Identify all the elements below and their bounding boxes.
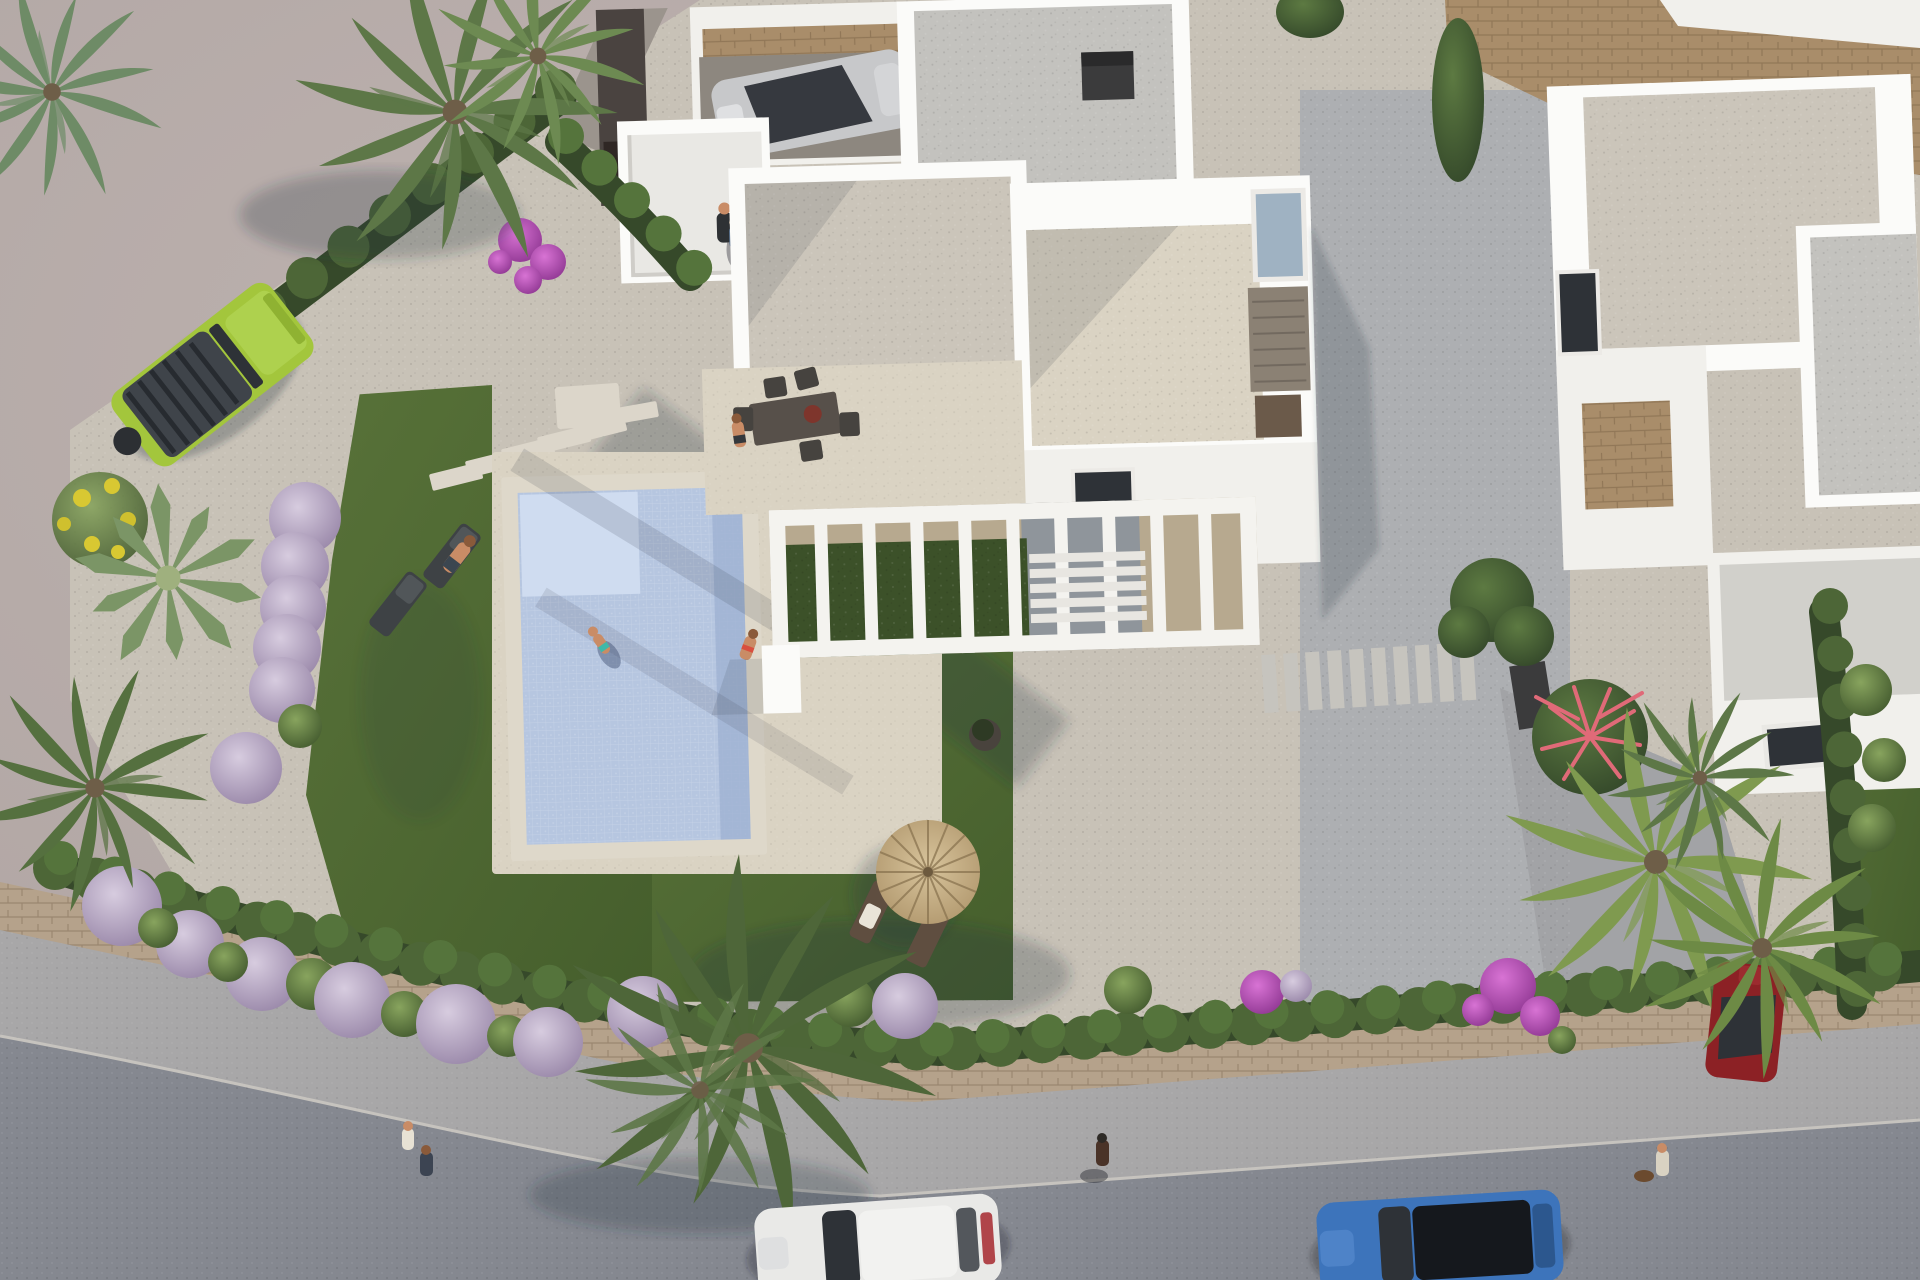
villa-aerial-render: Aerial 3D render of a modern white villa… (0, 0, 1920, 1280)
villa-window (1557, 271, 1600, 354)
scene-canvas: Aerial 3D render of a modern white villa… (0, 0, 1920, 1280)
pergola-column (762, 645, 802, 714)
patio (702, 356, 1026, 515)
dog (1634, 1170, 1654, 1182)
chimney-low (1255, 395, 1302, 438)
cypress-tree (1432, 18, 1484, 182)
courtyard-terrace (1010, 175, 1318, 461)
glass-door (1253, 190, 1305, 279)
blue-car (1307, 1188, 1573, 1280)
stone-clad-wall (1582, 400, 1674, 509)
wood-deck (1248, 286, 1311, 392)
straw-parasol (876, 820, 980, 924)
planter-pot (969, 719, 1001, 751)
